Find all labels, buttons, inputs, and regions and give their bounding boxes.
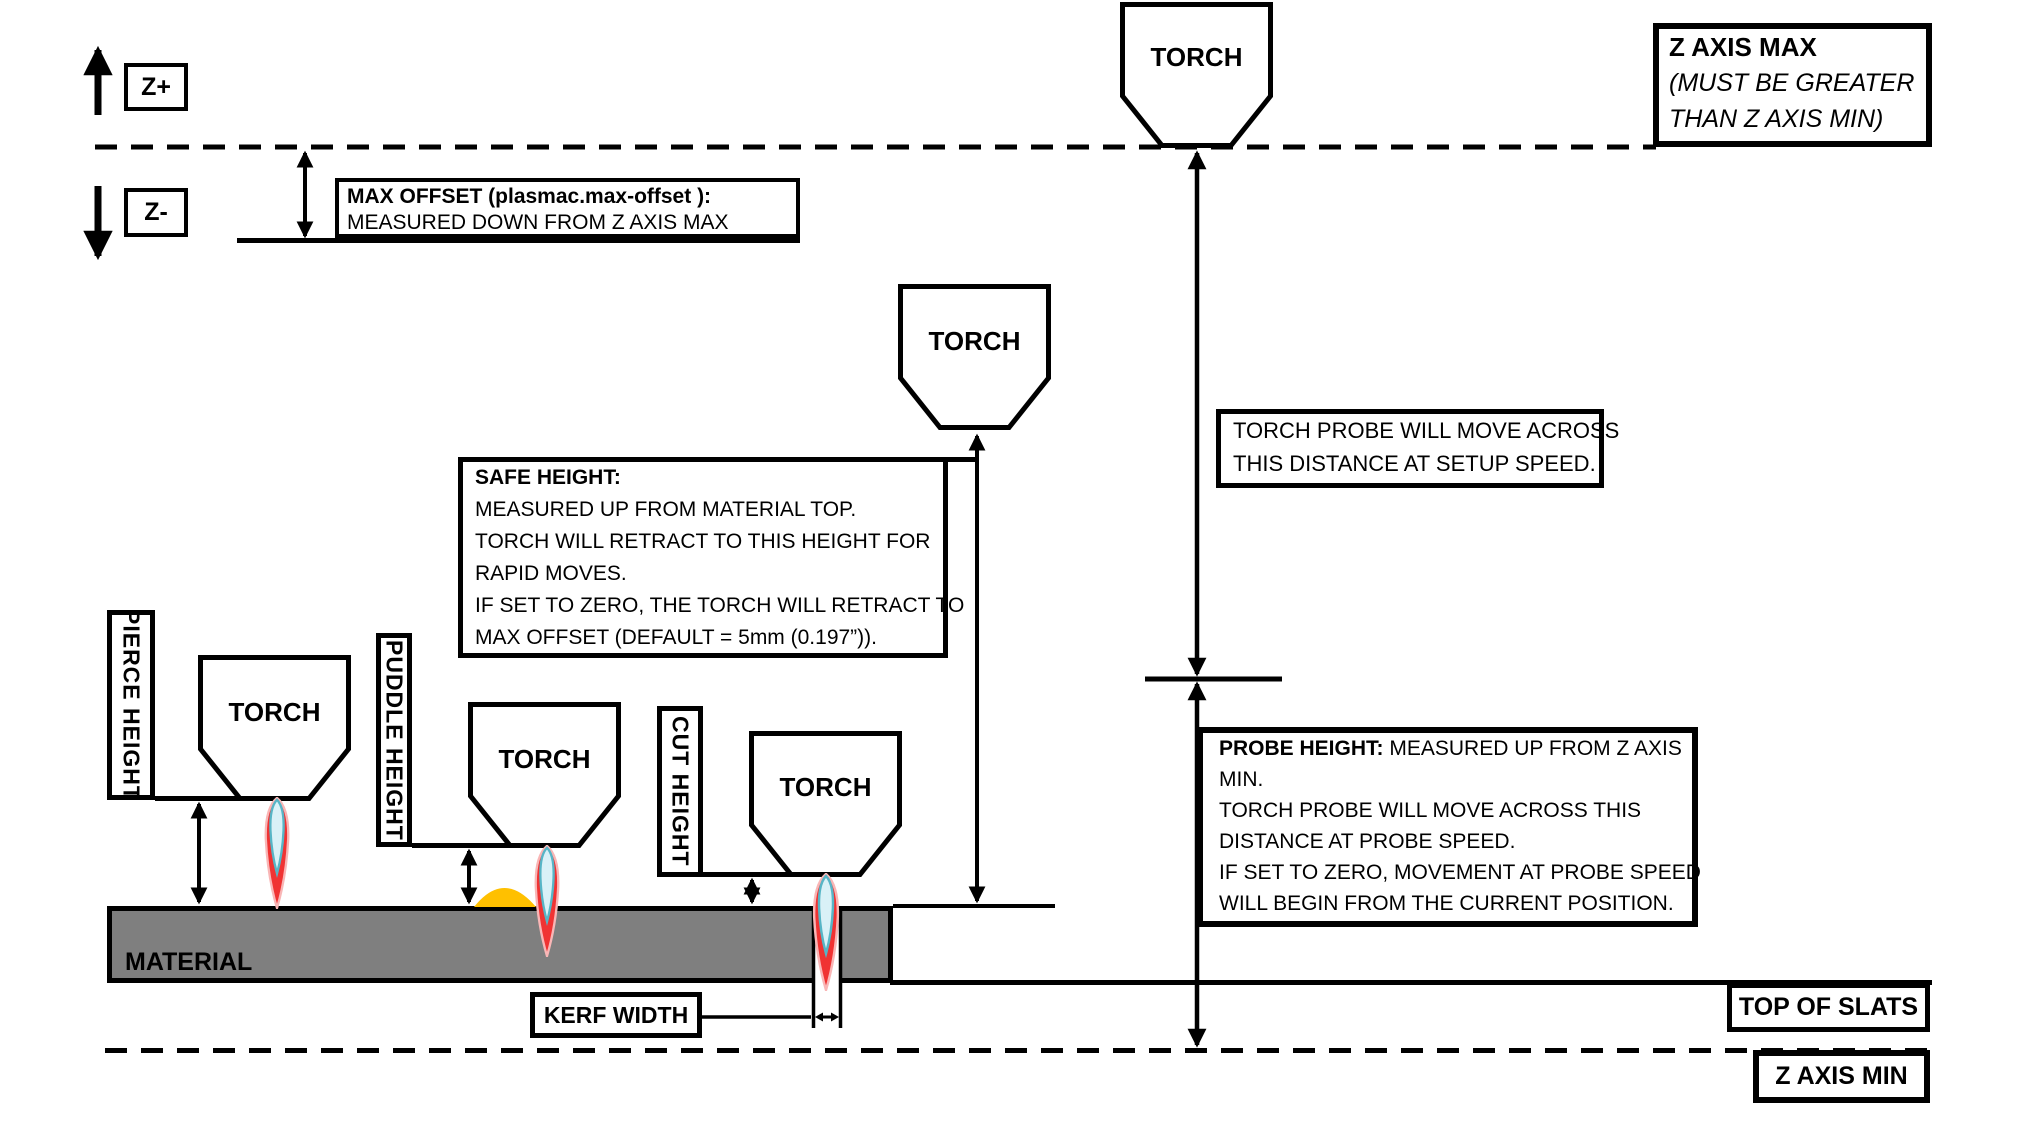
top-of-slats-label: TOP OF SLATS [1727, 983, 1930, 1032]
max-offset-line: MEASURED DOWN FROM Z AXIS MAX [347, 210, 788, 236]
plasmac-height-diagram: Z+ Z- MAX OFFSET (plasmac.max-offset ): … [0, 0, 2038, 1145]
probe-height-line6: WILL BEGIN FROM THE CURRENT POSITION. [1219, 888, 1676, 919]
safe-height-line3: RAPID MOVES. [475, 558, 931, 590]
safe-height-callout: SAFE HEIGHT: MEASURED UP FROM MATERIAL T… [458, 457, 948, 658]
kerf-width-label: KERF WIDTH [530, 992, 702, 1038]
pierce-height-label: PIERCE HEIGHT [107, 610, 155, 800]
puddle-height-label: PUDDLE HEIGHT [376, 633, 412, 847]
torch-top-label: TORCH [1120, 42, 1273, 73]
z-plus-label: Z+ [124, 63, 188, 111]
safe-height-line4: IF SET TO ZERO, THE TORCH WILL RETRACT T… [475, 590, 931, 622]
setup-speed-callout: TORCH PROBE WILL MOVE ACROSS THIS DISTAN… [1216, 409, 1604, 488]
pierce-flame-icon [266, 798, 289, 908]
probe-height-line2: MIN. [1219, 764, 1676, 795]
cut-height-label: CUT HEIGHT [657, 706, 703, 877]
safe-height-title: SAFE HEIGHT: [475, 462, 931, 494]
probe-height-line3: TORCH PROBE WILL MOVE ACROSS THIS [1219, 795, 1676, 826]
probe-height-callout: PROBE HEIGHT: MEASURED UP FROM Z AXIS MI… [1197, 727, 1698, 927]
z-axis-max-note-line1: (MUST BE GREATER [1669, 65, 1916, 101]
molten-puddle [474, 888, 536, 907]
material-label: MATERIAL [125, 948, 252, 977]
torch-puddle-label: TORCH [468, 744, 621, 775]
z-minus-label: Z- [124, 188, 188, 237]
max-offset-callout: MAX OFFSET (plasmac.max-offset ): MEASUR… [335, 178, 800, 238]
torch-safe-icon [901, 287, 1049, 428]
probe-height-line5: IF SET TO ZERO, MOVEMENT AT PROBE SPEED [1219, 857, 1676, 888]
torch-pierce-label: TORCH [198, 697, 351, 728]
z-axis-max-title: Z AXIS MAX [1669, 29, 1916, 65]
torch-cut-label: TORCH [749, 772, 902, 803]
probe-height-line1: PROBE HEIGHT: MEASURED UP FROM Z AXIS [1219, 733, 1676, 764]
torch-safe-label: TORCH [898, 326, 1051, 357]
safe-height-line1: MEASURED UP FROM MATERIAL TOP. [475, 494, 931, 526]
setup-speed-line1: TORCH PROBE WILL MOVE ACROSS [1233, 414, 1587, 447]
probe-height-title-rest: MEASURED UP FROM Z AXIS [1384, 737, 1682, 760]
safe-height-line2: TORCH WILL RETRACT TO THIS HEIGHT FOR [475, 526, 931, 558]
z-axis-min-label: Z AXIS MIN [1753, 1050, 1930, 1103]
torch-top-icon [1123, 5, 1271, 146]
torch-pierce-icon [201, 658, 349, 799]
torch-cut-icon [752, 734, 900, 875]
torch-puddle-icon [471, 705, 619, 846]
max-offset-title: MAX OFFSET (plasmac.max-offset ): [347, 184, 788, 210]
probe-height-line4: DISTANCE AT PROBE SPEED. [1219, 826, 1676, 857]
diagram-canvas [0, 0, 2038, 1145]
z-axis-max-callout: Z AXIS MAX (MUST BE GREATER THAN Z AXIS … [1653, 23, 1932, 147]
probe-height-title: PROBE HEIGHT: [1219, 737, 1384, 760]
safe-height-line5: MAX OFFSET (DEFAULT = 5mm (0.197”)). [475, 622, 931, 654]
z-axis-max-note-line2: THAN Z AXIS MIN) [1669, 101, 1916, 137]
setup-speed-line2: THIS DISTANCE AT SETUP SPEED. [1233, 447, 1587, 480]
